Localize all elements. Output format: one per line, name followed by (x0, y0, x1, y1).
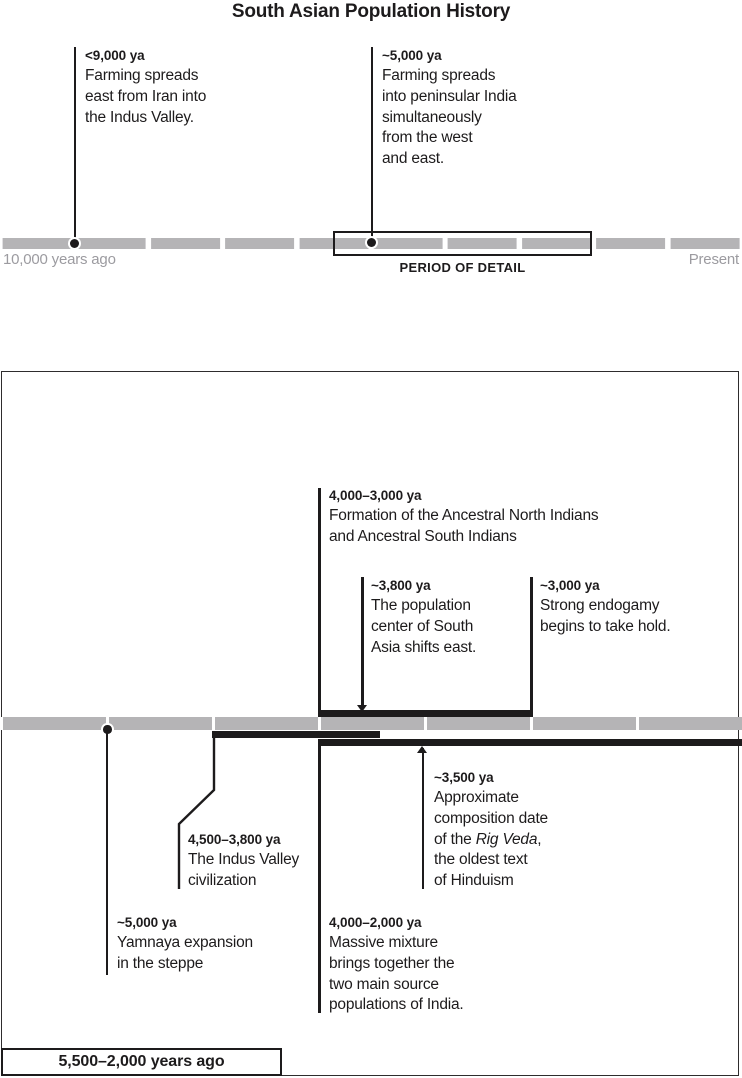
event-line: The Indus Valley (188, 850, 299, 871)
event-line: into peninsular India (382, 87, 517, 108)
leader-line-rig-veda (422, 748, 425, 889)
leader-line-yamnaya (106, 729, 109, 975)
event-line: Farming spreads (85, 66, 206, 87)
event-line: Formation of the Ancestral North Indians (329, 506, 598, 527)
rig-veda-line-suffix: , (537, 831, 541, 848)
event-date: <9,000 ya (85, 46, 206, 66)
event-date: ~3,500 ya (434, 768, 548, 788)
leader-line-mixture (318, 745, 321, 1013)
timeline-end-label: Present (689, 251, 739, 269)
event-date: ~3,000 ya (540, 576, 670, 596)
event-line: and Ancestral South Indians (329, 527, 598, 548)
leader-line-formation (318, 488, 321, 712)
event-line: composition date (434, 809, 548, 830)
event-line: brings together the (329, 954, 464, 975)
event-line: begins to take hold. (540, 617, 670, 638)
event-indus-valley: 4,500–3,800 ya The Indus Valley civiliza… (188, 830, 299, 892)
range-label: 5,500–2,000 years ago (58, 1053, 224, 1071)
period-of-detail-box (333, 231, 592, 256)
event-line: of Hinduism (434, 871, 548, 892)
event-population-shift: ~3,800 ya The population center of South… (371, 576, 476, 658)
leader-line-endogamy (530, 577, 533, 716)
event-line: center of South (371, 617, 476, 638)
event-line: Strong endogamy (540, 596, 670, 617)
period-of-detail-label: PERIOD OF DETAIL (333, 260, 592, 275)
event-line: The population (371, 596, 476, 617)
event-date: 4,000–2,000 ya (329, 913, 464, 933)
event-farming-peninsular: ~5,000 ya Farming spreads into peninsula… (382, 46, 517, 170)
event-line: Asia shifts east. (371, 638, 476, 659)
leader-line-population-shift (361, 577, 364, 707)
event-line: of the Rig Veda, (434, 830, 548, 851)
rig-veda-line-prefix: of the (434, 831, 476, 848)
rig-veda-italic-text: Rig Veda (476, 831, 538, 848)
period-bar-formation (318, 710, 533, 717)
event-line: and east. (382, 149, 517, 170)
period-bar-indus-valley (212, 731, 380, 738)
event-line: civilization (188, 871, 299, 892)
leader-line-farming-iran (74, 47, 77, 240)
event-yamnaya: ~5,000 ya Yamnaya expansion in the stepp… (117, 913, 253, 975)
event-line: two main source (329, 975, 464, 996)
event-line: from the west (382, 128, 517, 149)
event-date: ~5,000 ya (382, 46, 517, 66)
event-line: east from Iran into (85, 87, 206, 108)
timeline-figure: South Asian Population History <9,000 ya… (0, 0, 742, 1078)
event-mixture: 4,000–2,000 ya Massive mixture brings to… (329, 913, 464, 1016)
event-line: populations of India. (329, 995, 464, 1016)
range-label-box: 5,500–2,000 years ago (1, 1048, 282, 1076)
event-date: 4,500–3,800 ya (188, 830, 299, 850)
event-date: ~3,800 ya (371, 576, 476, 596)
arrow-up-icon (417, 746, 427, 753)
leader-line-farming-peninsular (371, 47, 374, 240)
event-marker-dot-farming-iran (70, 239, 79, 248)
event-line: the Indus Valley. (85, 108, 206, 129)
timeline-start-label: 10,000 years ago (3, 251, 116, 269)
event-line: simultaneously (382, 108, 517, 129)
event-date: ~5,000 ya (117, 913, 253, 933)
event-line: Yamnaya expansion (117, 933, 253, 954)
event-line: Farming spreads (382, 66, 517, 87)
event-formation: 4,000–3,000 ya Formation of the Ancestra… (329, 486, 598, 548)
event-farming-iran: <9,000 ya Farming spreads east from Iran… (85, 46, 206, 128)
event-line: the oldest text (434, 850, 548, 871)
event-line: Approximate (434, 788, 548, 809)
event-date: 4,000–3,000 ya (329, 486, 598, 506)
event-rig-veda: ~3,500 ya Approximate composition date o… (434, 768, 548, 892)
page-title: South Asian Population History (0, 0, 742, 24)
event-line: Massive mixture (329, 933, 464, 954)
event-endogamy: ~3,000 ya Strong endogamy begins to take… (540, 576, 670, 638)
period-bar-mixture (318, 739, 742, 746)
event-line: in the steppe (117, 954, 253, 975)
